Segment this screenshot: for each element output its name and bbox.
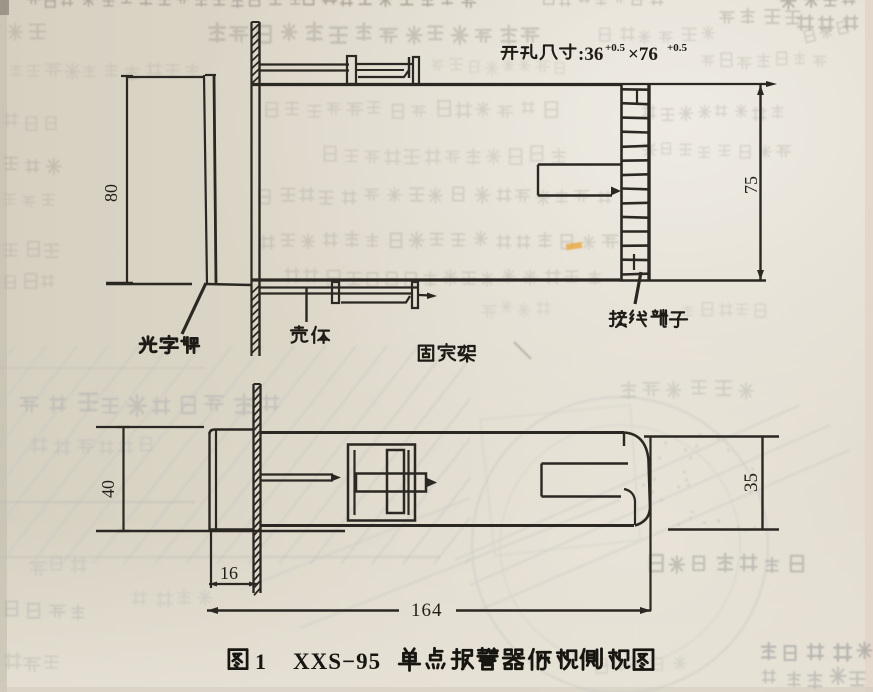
- svg-text::36: :36: [578, 44, 603, 65]
- svg-text:80: 80: [101, 184, 121, 202]
- svg-text:75: 75: [741, 176, 761, 194]
- svg-text:164: 164: [411, 600, 443, 621]
- svg-text:1: 1: [255, 649, 266, 674]
- svg-text:×76: ×76: [628, 44, 658, 65]
- svg-text:+0.5: +0.5: [667, 42, 688, 54]
- svg-text:XXS−95: XXS−95: [293, 649, 381, 674]
- svg-text:40: 40: [98, 480, 118, 498]
- svg-text:16: 16: [220, 563, 238, 583]
- svg-text:35: 35: [741, 473, 762, 492]
- svg-text:+0.5: +0.5: [605, 42, 626, 54]
